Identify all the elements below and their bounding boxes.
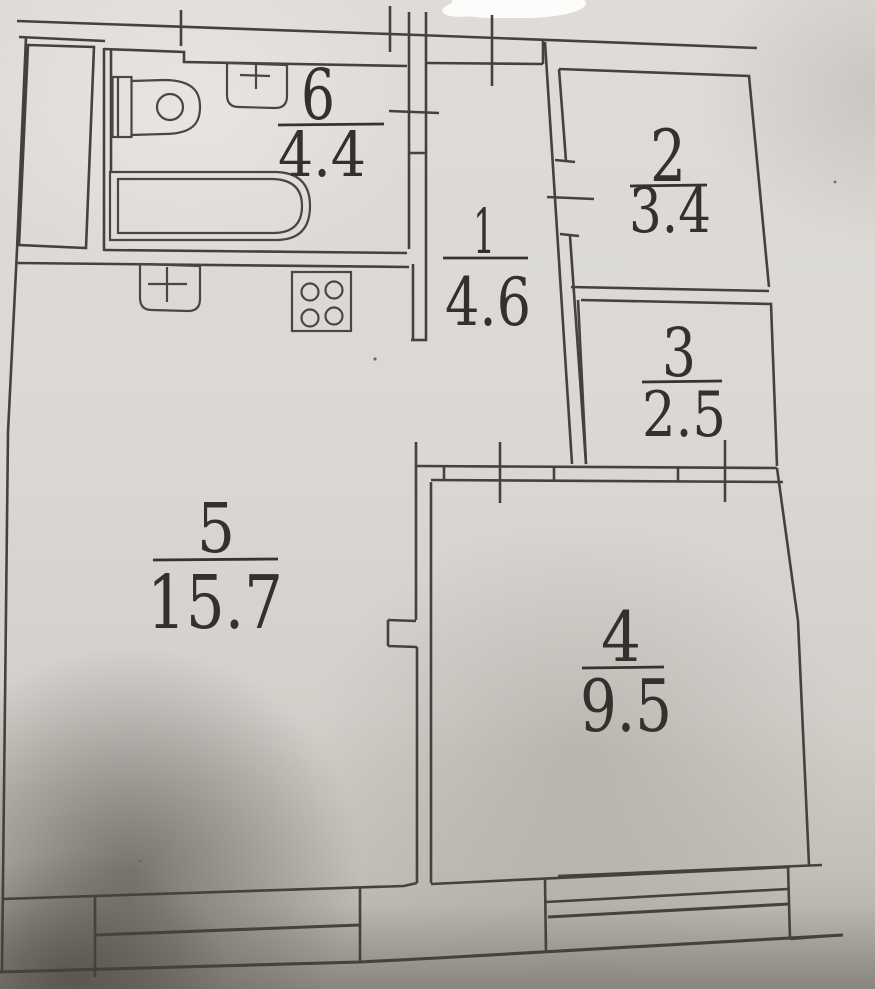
toilet-tank [113, 77, 132, 137]
room4-bottom-wall-inner [558, 865, 822, 876]
room4-balcony-left [545, 879, 546, 953]
room-area: 4.4 [278, 118, 366, 191]
bathroom-bottom-wall [104, 250, 407, 253]
toilet-fixture [113, 77, 201, 137]
bathroom-door-tick [389, 111, 439, 113]
room-6-label: 6 4.4 [278, 54, 384, 191]
room-2-label: 2 3.4 [629, 114, 711, 247]
hallway-right-wall [545, 42, 572, 464]
room5-bottom-wall [2, 883, 417, 899]
room4-top-wall-inner [431, 480, 783, 482]
top-wall [17, 21, 757, 48]
room4-walls [388, 442, 809, 883]
room2-bottom-wall [571, 287, 769, 291]
room-area: 9.5 [580, 664, 672, 748]
stove-burner [302, 310, 319, 327]
vent-shaft [19, 45, 94, 248]
room-area: 4.6 [445, 264, 531, 341]
room-area: 15.7 [147, 560, 283, 646]
room-5-label: 5 15.7 [147, 490, 283, 646]
room-area: 2.5 [642, 378, 726, 451]
bathtub-inner [118, 179, 302, 233]
speck [834, 181, 837, 184]
room5-window-sill [95, 925, 360, 935]
kitchen-sink-fixture [140, 264, 200, 311]
bathroom-sink-fixture [227, 63, 287, 108]
stove-fixture [292, 272, 351, 331]
room-1-label: 1 4.6 [443, 195, 531, 341]
balcony-outer-edge [0, 935, 843, 972]
room-4-label: 4 9.5 [580, 598, 672, 748]
kitchen-sink-basin [140, 264, 200, 311]
kitchen-top-wall [17, 263, 409, 267]
stove-burner [326, 308, 343, 325]
toilet-bowl-drain [157, 94, 183, 120]
room-labels: 6 4.4 1 4.6 2 3.4 3 2.5 5 1 [147, 54, 726, 748]
sink-cross-icon [148, 267, 187, 302]
room-number: 5 [197, 490, 235, 569]
speck [373, 357, 376, 360]
wall-protrusion [388, 620, 417, 647]
stove-burner [302, 284, 319, 301]
room-area: 3.4 [629, 174, 711, 247]
sink-cross-icon [240, 64, 270, 89]
room4-window-sill [548, 904, 789, 917]
hallway-top-wall [426, 41, 543, 64]
balcony-windows [0, 865, 843, 977]
room-3-label: 3 2.5 [642, 314, 726, 451]
speck [139, 860, 142, 863]
room4-top-wall-outer [416, 466, 777, 468]
floorplan-photo: 6 4.4 1 4.6 2 3.4 3 2.5 5 1 [0, 0, 875, 989]
stove-burner [326, 282, 343, 299]
top-wall-inner [19, 37, 105, 41]
room4-balcony-top [546, 889, 788, 902]
room4-balcony-right [788, 866, 790, 939]
toilet-bowl [131, 80, 200, 135]
room4-right-wall [777, 468, 809, 865]
stove-body [292, 272, 351, 331]
outer-walls [2, 21, 757, 971]
floor-plan-drawing: 6 4.4 1 4.6 2 3.4 3 2.5 5 1 [0, 0, 875, 989]
